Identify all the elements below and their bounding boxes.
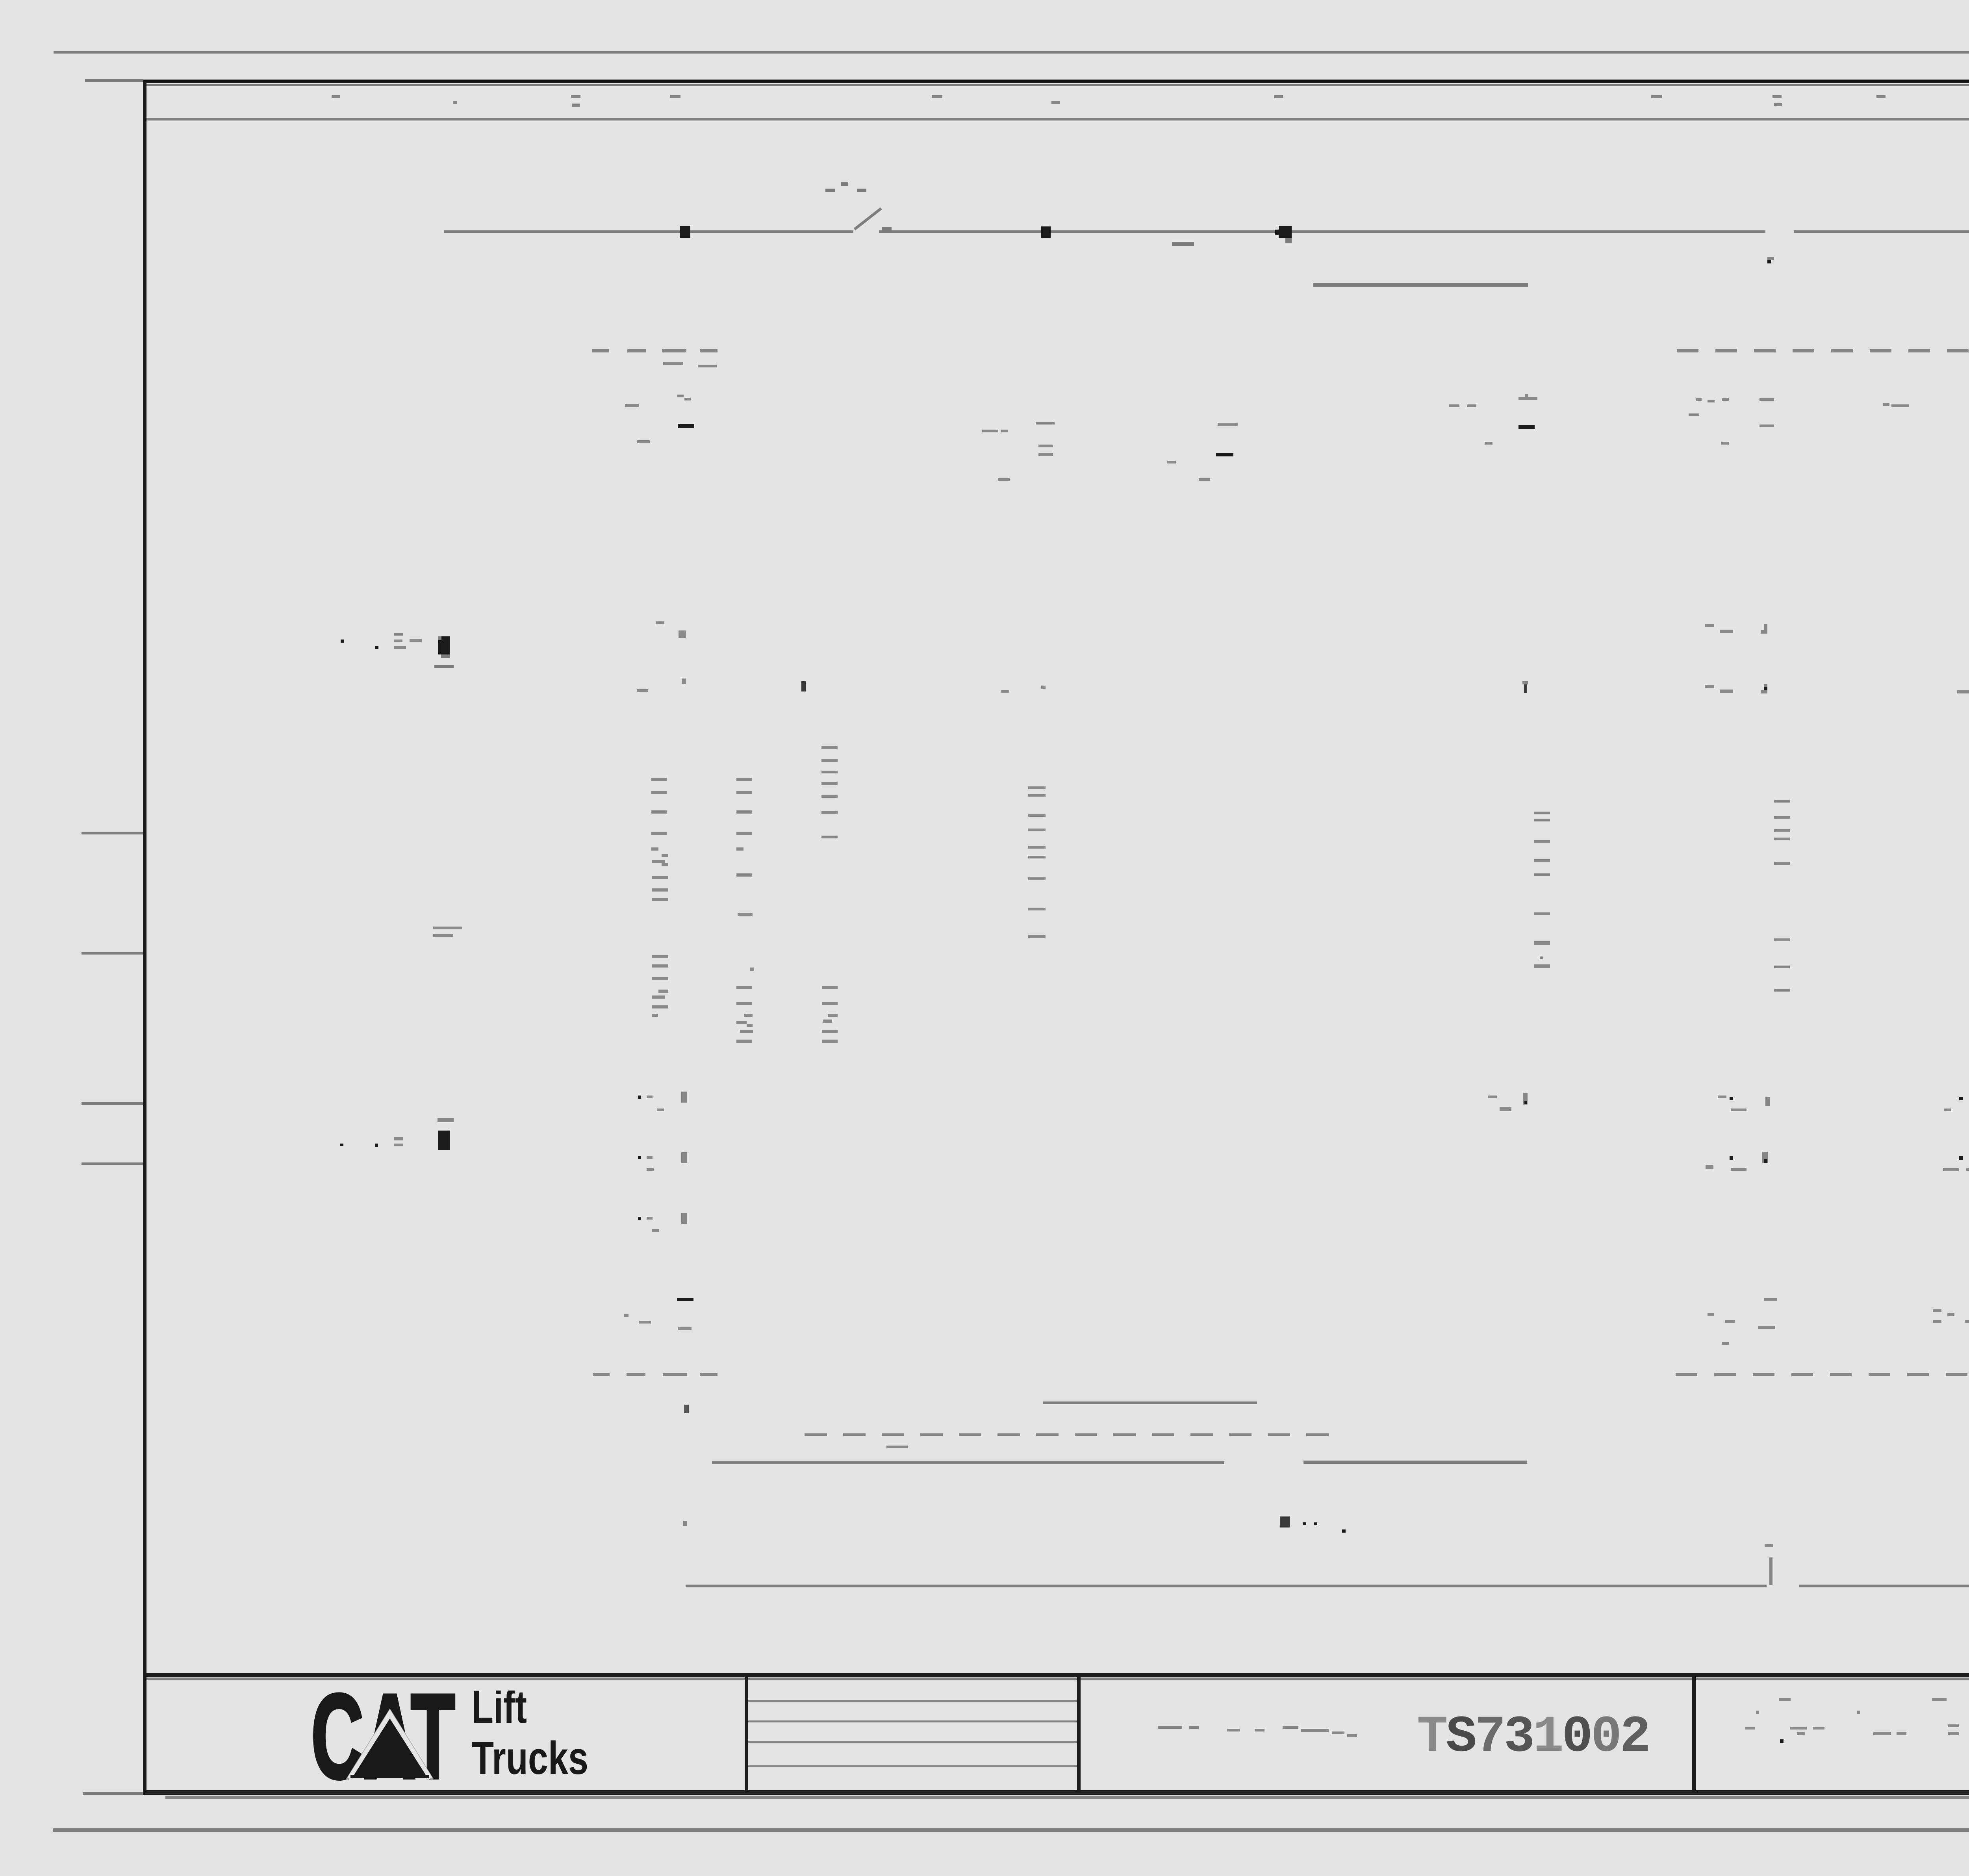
svg-text:Lift: Lift — [472, 1691, 527, 1733]
svg-text:Trucks: Trucks — [472, 1732, 588, 1784]
